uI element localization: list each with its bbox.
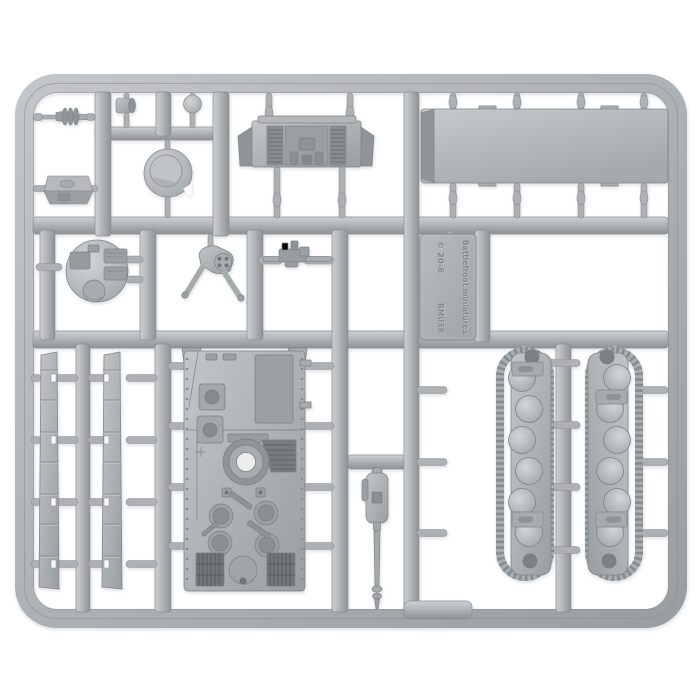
- runner-h1: [33, 217, 668, 234]
- data-plate-part: Battlefront miniatures Battlefront minia…: [420, 234, 476, 340]
- runner-h2: [33, 331, 668, 348]
- side-skirt-strip-1: [39, 352, 59, 589]
- turret-top-part: [66, 240, 128, 302]
- side-skirt-strip-2: [102, 352, 122, 589]
- roof-panel-part: [421, 106, 668, 186]
- runner-v-central: [404, 92, 419, 612]
- sprue-photo: Battlefront miniatures Battlefront minia…: [0, 0, 700, 700]
- runner-v: [140, 230, 156, 340]
- runner-v-tracks: [556, 344, 571, 612]
- periscope-knob-1-part: [116, 98, 136, 113]
- runner-bottom-boss: [404, 601, 472, 619]
- runner-v: [213, 92, 229, 236]
- runner-v: [155, 344, 171, 612]
- plate-brand-text: Battlefront miniatures: [461, 240, 470, 334]
- hull-top-part: [182, 348, 311, 591]
- runner-v: [40, 230, 55, 340]
- plate-copyright: © 20-6: [436, 241, 445, 273]
- runner-v: [247, 230, 263, 340]
- periscope-knob-2-part: [184, 95, 202, 113]
- runner-v: [332, 230, 348, 612]
- runner-v: [475, 230, 490, 342]
- hatch-disc-part: [144, 149, 192, 197]
- cupola-box-part: [44, 176, 93, 204]
- plate-code: BMU58: [436, 303, 445, 333]
- runner-v: [95, 92, 111, 236]
- photo-stage: Battlefront miniatures Battlefront minia…: [0, 0, 700, 700]
- runner-v: [156, 92, 171, 136]
- runner-v: [76, 344, 90, 612]
- engine-deck-part: [238, 116, 374, 167]
